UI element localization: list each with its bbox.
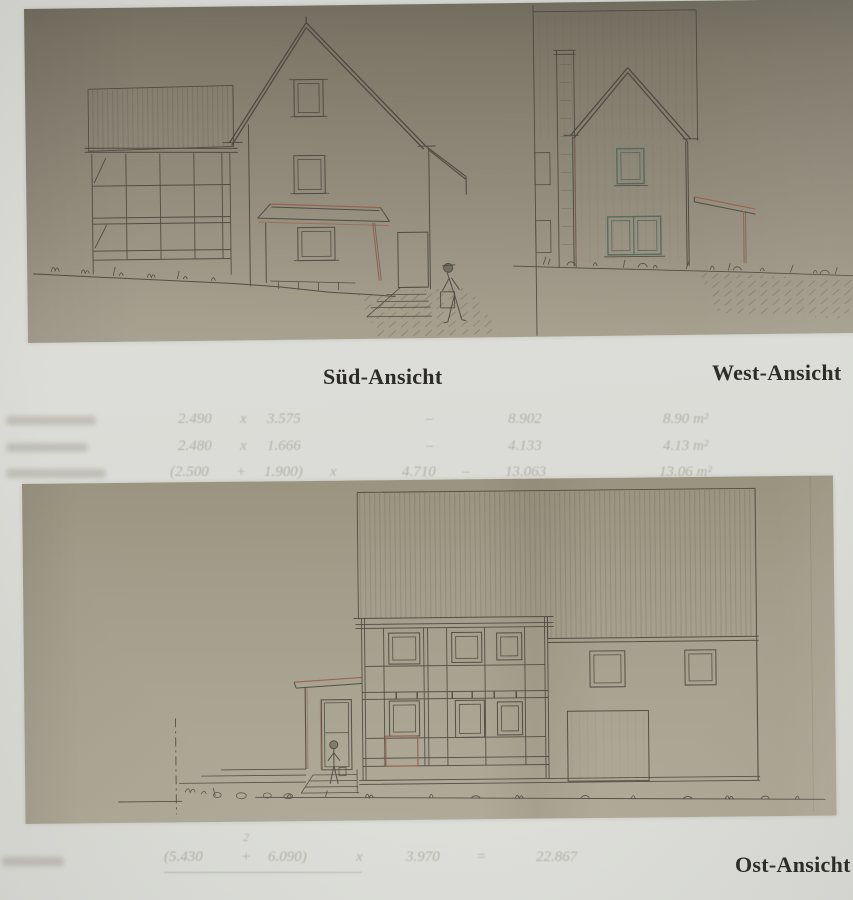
bleedthrough-formula: 2 (5.430 + 6.090) x 3.970 = 22.867 <box>0 828 853 888</box>
bleed-result: 8.902 <box>508 411 542 428</box>
elevations-top-svg <box>24 0 853 343</box>
west-elevation-drawing <box>510 1 853 336</box>
west-ground <box>513 253 853 323</box>
south-elevation-drawing <box>30 14 500 342</box>
south-porch <box>257 203 390 284</box>
bottom-scan-photo <box>22 476 837 824</box>
bleed-row: 2.480 x 1.666 – 4.133 4.13 m² <box>0 438 853 460</box>
bleed-row: 2.490 x 3.575 – 8.902 8.90 m² <box>0 411 853 433</box>
east-ground <box>255 790 825 799</box>
top-scan-photo <box>24 0 853 343</box>
bleed-label-smudge <box>6 416 96 425</box>
bleed-value: 4.710 <box>402 464 436 481</box>
bleed-value: 2.480 <box>178 438 212 455</box>
bleed-result: 22.867 <box>536 849 577 866</box>
label-sued-ansicht: Süd-Ansicht <box>323 364 442 390</box>
bleed-operator: x <box>356 849 363 866</box>
elevation-bottom-svg <box>22 476 837 824</box>
bleed-operator: + <box>236 464 246 481</box>
bleed-operator: + <box>241 849 251 866</box>
label-ost-ansicht: Ost-Ansicht <box>735 852 851 878</box>
bleed-area: 8.90 m² <box>663 411 708 428</box>
east-barn <box>567 640 758 782</box>
west-facade <box>573 135 690 267</box>
garage-door <box>567 710 649 781</box>
bleed-label-smudge <box>6 469 106 478</box>
bleed-value: 6.090) <box>268 849 307 866</box>
person-figure <box>328 741 346 784</box>
east-porch <box>294 677 363 770</box>
south-barn-timber-grid <box>92 152 231 276</box>
bleed-value: (2.500 <box>170 464 209 481</box>
bleed-value: 1.900) <box>264 464 303 481</box>
bleed-operator: x <box>240 411 247 428</box>
east-lower-windows <box>385 700 523 766</box>
fraction-line <box>164 872 362 873</box>
east-roof <box>352 488 759 644</box>
bleed-value: 3.970 <box>406 849 440 866</box>
bleed-label-smudge <box>6 443 88 452</box>
red-apron-panel <box>386 736 418 766</box>
bleed-operator: x <box>330 464 337 481</box>
south-barn-roof <box>84 85 238 154</box>
label-west-ansicht: West-Ansicht <box>712 360 842 386</box>
east-elevation-drawing <box>115 476 826 819</box>
bleed-label-smudge <box>2 857 64 866</box>
east-terrace <box>179 769 306 800</box>
bleed-equals: – <box>426 438 434 455</box>
bleed-equals: = <box>476 849 486 866</box>
scanned-document-page: Süd-Ansicht West-Ansicht 2.490 x 3.575 –… <box>0 0 853 900</box>
east-upper-windows <box>389 632 522 664</box>
sheet-fold-line <box>810 476 814 812</box>
bleed-equals: – <box>426 411 434 428</box>
bleed-operator: x <box>240 438 247 455</box>
south-main-roof <box>221 15 466 198</box>
bleed-value: (5.430 <box>164 849 203 866</box>
south-terrace-rail <box>270 280 355 291</box>
east-timber-facade <box>355 614 760 784</box>
datum-line <box>117 718 182 815</box>
south-middle-window <box>290 155 329 193</box>
west-carport <box>694 196 756 264</box>
bleed-value: 2.490 <box>178 411 212 428</box>
bleed-area: 4.13 m² <box>663 438 708 455</box>
south-wing-door <box>398 232 429 287</box>
bleed-value: 1.666 <box>267 438 301 455</box>
south-gable-window <box>289 79 328 116</box>
bleed-result: 4.133 <box>508 438 542 455</box>
bleed-digit: 2 <box>243 830 249 845</box>
bleed-value: 3.575 <box>267 411 301 428</box>
